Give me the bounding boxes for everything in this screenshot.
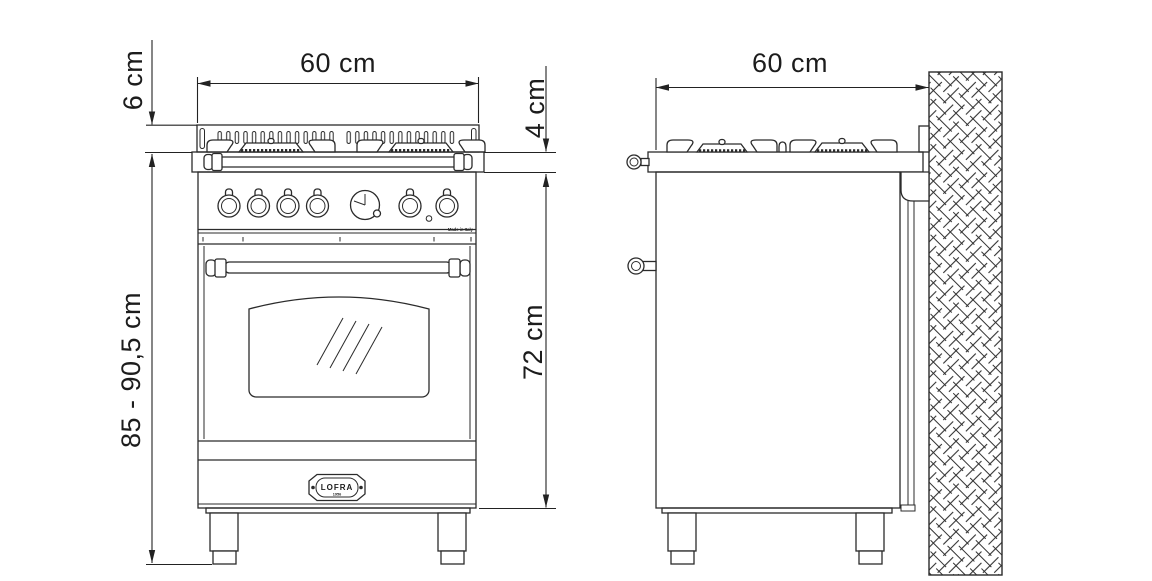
clock-winder xyxy=(374,210,381,217)
back-bracket xyxy=(901,172,929,201)
badge-brand-text: LOFRA xyxy=(321,483,354,492)
side-base-strip xyxy=(662,508,892,513)
badge-screw-right xyxy=(359,486,363,490)
dim-body-height: 72 cm xyxy=(479,174,556,509)
handle-end-cap-right xyxy=(460,260,470,276)
base-and-feet xyxy=(206,508,470,564)
rail-collar-left xyxy=(212,154,222,171)
dim-width-front: 60 cm xyxy=(198,48,479,123)
dim-worktop-edge: 4 cm xyxy=(484,66,556,173)
dim-depth-label: 60 cm xyxy=(752,48,828,78)
wall xyxy=(929,72,1002,575)
technical-drawing-canvas: Made in Italy xyxy=(0,0,1152,581)
body-outline xyxy=(198,172,476,508)
badge-screw-left xyxy=(311,486,315,490)
side-base-and-feet xyxy=(662,508,892,564)
timer-clock xyxy=(351,191,381,220)
dimension-drawing: Made in Italy xyxy=(0,0,1152,581)
knob-4 xyxy=(307,189,329,217)
dim-body-height-label: 72 cm xyxy=(518,304,548,380)
dim-backsplash-label: 6 cm xyxy=(118,50,148,111)
side-view: 60 cm xyxy=(627,48,1002,575)
side-foot-front xyxy=(668,513,696,564)
dim-depth-side: 60 cm xyxy=(656,48,929,150)
drawer-panel: LOFRA 1956 xyxy=(198,460,476,504)
foot-right xyxy=(438,513,466,564)
dim-width-label: 60 cm xyxy=(300,48,376,78)
front-view: Made in Italy xyxy=(116,40,556,565)
indicator-light xyxy=(426,216,432,222)
knob-6 xyxy=(436,189,458,217)
dim-backsplash-height: 6 cm xyxy=(118,40,197,125)
door-handle xyxy=(206,259,470,277)
door-handle-end xyxy=(628,258,644,274)
knob-3 xyxy=(277,189,299,217)
brand-badge: LOFRA 1956 xyxy=(309,475,365,501)
center-support-post xyxy=(779,142,786,152)
foot-left xyxy=(210,513,238,564)
dim-worktop-edge-label: 4 cm xyxy=(520,78,550,139)
door-window xyxy=(249,297,429,397)
window-reflections xyxy=(317,318,382,374)
handle-collar-right xyxy=(449,259,460,277)
backsplash-profile xyxy=(919,126,929,152)
knob-5 xyxy=(399,189,421,217)
hob-handle-end xyxy=(627,155,641,169)
side-hob xyxy=(627,152,923,172)
back-panel xyxy=(901,172,929,511)
wall-hatch xyxy=(929,72,1002,575)
side-body xyxy=(628,172,929,511)
knob-1 xyxy=(218,189,240,217)
badge-year-text: 1956 xyxy=(333,493,341,497)
handle-collar-left xyxy=(215,259,226,277)
burner-left-front xyxy=(207,139,335,153)
backsplash-left-slot xyxy=(200,129,205,149)
dim-overall-height-label: 85 - 90,5 cm xyxy=(116,292,146,448)
burner-right-front xyxy=(357,139,485,153)
rail-collar-right xyxy=(454,154,464,171)
side-burners xyxy=(667,139,897,153)
side-foot-rear xyxy=(856,513,884,564)
panel-groove-ticks xyxy=(203,237,471,242)
control-panel: Made in Italy xyxy=(198,189,476,242)
hob-handle-stem xyxy=(641,159,649,166)
oven-door xyxy=(198,244,476,441)
towel-rail xyxy=(192,152,484,172)
knob-2 xyxy=(248,189,270,217)
base-strip xyxy=(206,508,470,513)
